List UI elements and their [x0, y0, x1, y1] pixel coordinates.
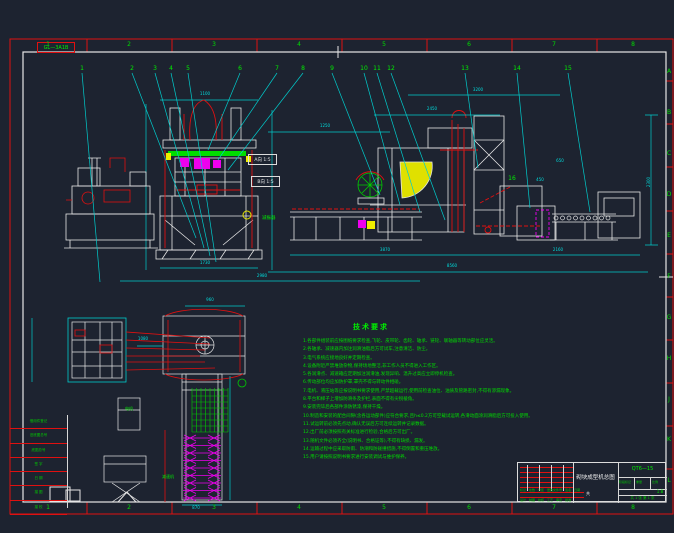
rev-label: 日期: [574, 488, 580, 492]
zone-number-top: 1: [46, 42, 50, 48]
balloon-number: 16: [508, 176, 516, 182]
dimension-text: 3870: [380, 248, 390, 252]
balloon-number: 14: [513, 66, 521, 72]
note-line: 1.各部件组装前应按图纸要求检查,飞轮、皮带轮、齿轮、轴承、链轮、联轴器等转动部…: [303, 338, 563, 346]
zone-number-top: 5: [382, 42, 386, 48]
dimension-text: 960: [206, 298, 214, 302]
balloon-number: 13: [461, 66, 469, 72]
balloon-number: 7: [275, 66, 279, 72]
note-line: 14.运输过程中应采取防雨、防潮和防碰撞措施,不得倒置和重压堆放。: [303, 446, 563, 454]
note-line: 10.制造和安装的配合间隙(含各运动部件)应符合要求,且h≤0.2方可空载试运转…: [303, 413, 563, 421]
zone-letter-right: C: [667, 151, 671, 157]
balloon-number: 6: [238, 66, 242, 72]
drawing-canvas[interactable]: GL—3A1B 12345678 12345678 ABCDEFGHJKL 12…: [0, 0, 674, 533]
dimension-text: 3200: [473, 88, 483, 92]
sig-label: 批准: [565, 498, 571, 502]
sig-label: 工艺: [547, 498, 553, 502]
side-view: [268, 95, 658, 272]
damper-label: 减振器: [262, 215, 276, 221]
damper-symbol-icon: [243, 211, 251, 219]
margin-row: 描 图: [10, 486, 67, 500]
technical-notes: 1.各部件组装前应按图纸要求检查,飞轮、皮带轮、齿轮、轴承、链轮、联轴器等转动部…: [303, 338, 563, 462]
pallet-outline: [536, 210, 549, 237]
note-line: 7.电机、液压站等应按说明书要求使用,严禁超载运行,使用前检查油位、油质及管路密…: [303, 388, 563, 396]
note-line: 5.各润滑点、减速箱应定期加注润滑油,发现异响、温升过高应立即停机检查。: [303, 371, 563, 379]
balloon-number: 4: [169, 66, 173, 72]
balloon-number: 15: [564, 66, 572, 72]
note-line: 12.出厂前必须按照有关标准进行检验,合格后方可出厂。: [303, 429, 563, 437]
note-line: 13.随机文件必须齐全(说明书、合格证等),不得有缺损、漏发。: [303, 438, 563, 446]
dimension-text: 870: [192, 506, 200, 510]
balloon-number: 12: [387, 66, 395, 72]
dimension-text: 2160: [553, 248, 563, 252]
balloon-number: 9: [330, 66, 334, 72]
notes-title: 技术要求: [353, 322, 389, 332]
note-line: 2.各轴承、减速器内加注润滑油脂后方可试车,注意清洁、防尘。: [303, 346, 563, 354]
signature-labels: 设计制图校核工艺审定批准: [520, 498, 574, 502]
zone-number-bottom: 3: [212, 505, 216, 511]
note-line: 8.平台和梯子上增加防滑条及护栏,表面不得有尖锐棱角。: [303, 396, 563, 404]
note-line: 4.设备附近严禁堆放杂物,保持场地整洁,非工作人员不得进入工作区。: [303, 363, 563, 371]
zone-letter-right: H: [667, 356, 672, 362]
zone-letter-right: E: [667, 233, 671, 239]
hopper-section: [400, 162, 432, 198]
zone-letter-right: B: [667, 110, 671, 116]
drawing-title: 砌块成型机总图: [573, 467, 618, 487]
dimension-text: 450: [536, 178, 544, 182]
zone-number-bottom: 8: [631, 505, 635, 511]
dimension-text: 1080: [138, 337, 148, 341]
margin-row: 借用件登记: [10, 415, 67, 429]
sig-label: 制图: [529, 498, 535, 502]
zone-letter-right: D: [667, 192, 672, 198]
roller-conveyor: [554, 216, 610, 220]
zone-number-bottom: 4: [297, 505, 301, 511]
zone-number-bottom: 7: [552, 505, 556, 511]
sheet-count: 共 1 张 第 1 张: [618, 496, 667, 501]
model-number: QT6—15: [618, 466, 667, 472]
plan-label-reducer: 减速机: [162, 474, 174, 480]
zone-number-bottom: 5: [382, 505, 386, 511]
sig-label: 审定: [556, 498, 562, 502]
dimension-text: 2300: [647, 177, 651, 187]
rev-label: 签名: [565, 488, 571, 492]
balloon-number: 8: [301, 66, 305, 72]
sig-label: 设计: [520, 498, 526, 502]
margin-row: 描 校: [10, 501, 67, 515]
note-line: 3.电气系统应接地良好并定期检查。: [303, 355, 563, 363]
dimension-text: 1250: [320, 124, 330, 128]
dimension-text: 1730: [200, 261, 210, 265]
balloon-number: 3: [153, 66, 157, 72]
zone-number-bottom: 6: [467, 505, 471, 511]
dimension-text: 650: [556, 159, 564, 163]
dimension-text: 2450: [427, 107, 437, 111]
balloon-number: 1: [80, 66, 84, 72]
balloon-number: 5: [186, 66, 190, 72]
zone-number-top: 4: [297, 42, 301, 48]
margin-signature-strip: 借用件登记旧底图总号底图总号签 字日 期描 图描 校: [10, 415, 68, 508]
dimension-text: 2980: [257, 274, 267, 278]
note-line: 11.试运转前必须先点动,确认无误后方可连续运转并记录数据。: [303, 421, 563, 429]
dimension-text: 1100: [200, 92, 210, 96]
zone-number-top: 6: [467, 42, 471, 48]
rev-label: 分区: [538, 488, 544, 492]
rev-label: 标记: [520, 488, 526, 492]
note-line: 9.安装完毕后各部件涂防锈漆,保持干燥。: [303, 404, 563, 412]
margin-row: 签 字: [10, 458, 67, 472]
dimension-text: 8560: [447, 264, 457, 268]
title-block: 标记处数分区更改文件号签名日期 设计制图校核工艺审定批准 砌块成型机总图 QT6…: [517, 462, 666, 502]
balloon-number: 11: [373, 66, 381, 72]
zone-letter-right: K: [667, 437, 671, 443]
scale-label: 比例: [652, 480, 658, 484]
zone-letter-right: F: [667, 274, 670, 280]
sig-label: 校核: [538, 498, 544, 502]
zone-letter-right: J: [668, 397, 670, 403]
plan-label-motor: 电机: [125, 406, 133, 412]
balloon-number: 2: [130, 66, 134, 72]
rev-label: 处数: [529, 488, 535, 492]
weight-label: 重量: [636, 480, 642, 484]
balloon-number: 10: [360, 66, 368, 72]
scale-value: 1:8: [653, 489, 667, 494]
rev-label: 更改文件号: [547, 488, 562, 492]
sheet-glyph: 共: [586, 491, 590, 497]
magenta-rungs: [183, 435, 221, 501]
zone-letter-right: G: [667, 315, 672, 321]
zone-letter-right: L: [667, 478, 670, 484]
view-label-a: A向 1:5: [248, 154, 277, 165]
zone-letter-right: A: [667, 69, 671, 75]
stage-label: 阶段标记: [619, 480, 631, 484]
zone-number-top: 2: [127, 42, 131, 48]
zone-number-bottom: 2: [127, 505, 131, 511]
vibration-table-bar: [168, 151, 246, 156]
revision-labels: 标记处数分区更改文件号签名日期: [520, 488, 583, 492]
zone-number-top: 3: [212, 42, 216, 48]
zone-number-top: 8: [631, 42, 635, 48]
margin-row: 底图总号: [10, 444, 67, 458]
mixer-unit: [64, 158, 158, 248]
margin-row: 旧底图总号: [10, 429, 67, 443]
margin-row: 日 期: [10, 472, 67, 486]
note-line: 6.传动部位均应加防护罩,罩壳不得与转动件相碰。: [303, 379, 563, 387]
sheet-code-label: GL—3A1B: [37, 42, 75, 53]
zone-number-top: 7: [552, 42, 556, 48]
green-grid: [192, 388, 228, 432]
view-label-b: B向 1:5: [251, 176, 280, 187]
